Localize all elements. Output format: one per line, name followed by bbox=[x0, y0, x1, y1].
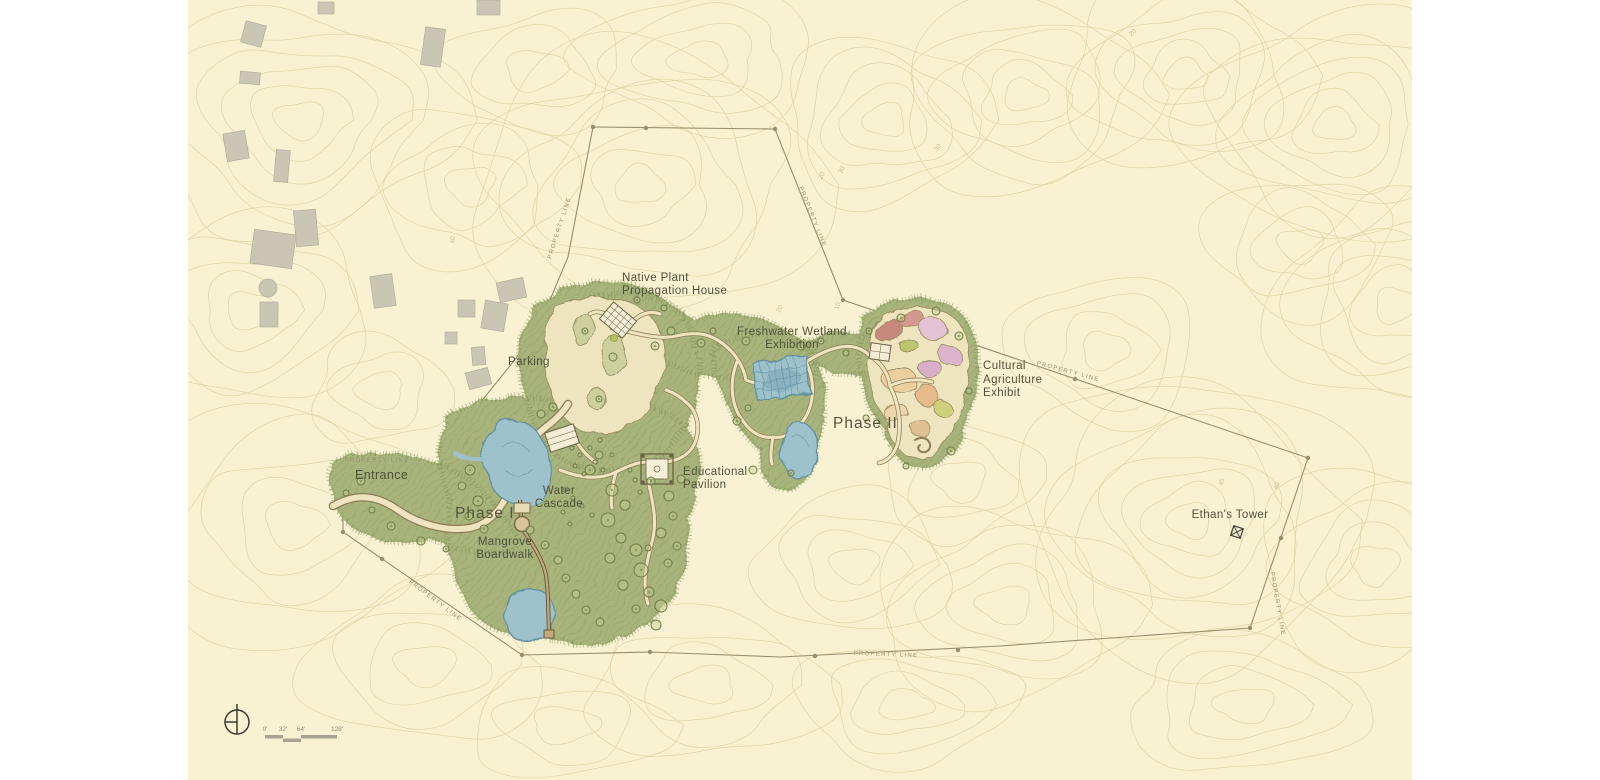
property-line-label-entrance: PROPERTY LINE bbox=[345, 458, 410, 464]
site-plan-drawing bbox=[0, 0, 1600, 780]
scale-tick: 128' bbox=[331, 726, 343, 733]
label-ethans-tower: Ethan's Tower bbox=[1192, 509, 1269, 522]
freshwater-wetland-pond bbox=[753, 355, 812, 400]
scale-tick: 64' bbox=[297, 726, 305, 733]
label-educational-pavilion: Educational Pavilion bbox=[683, 466, 748, 492]
label-freshwater-wetland: Freshwater Wetland Exhibition bbox=[737, 326, 847, 352]
label-cultural-agriculture: Cultural Agriculture Exhibit bbox=[983, 360, 1042, 401]
scale-tick: 0' bbox=[263, 726, 268, 733]
label-mangrove-boardwalk: Mangrove Boardwalk bbox=[476, 536, 533, 562]
cultural-shed-structure bbox=[869, 343, 891, 362]
master-plan-page: Native Plant Propagation House Parking E… bbox=[0, 0, 1600, 780]
contour-label: 45 bbox=[1218, 478, 1226, 487]
label-parking: Parking bbox=[508, 356, 550, 369]
label-entrance: Entrance bbox=[355, 468, 408, 482]
cascade-weir-structure bbox=[514, 503, 530, 513]
ethans-tower-icon bbox=[1231, 526, 1244, 539]
label-water-cascade: Water Cascade bbox=[535, 485, 583, 511]
contour-label: 40 bbox=[449, 236, 457, 244]
label-phase-2: Phase II bbox=[833, 415, 898, 433]
label-propagation-house: Native Plant Propagation House bbox=[622, 272, 727, 298]
scale-tick: 32' bbox=[279, 726, 287, 733]
phase2-wetland-pond bbox=[781, 422, 817, 477]
label-phase-1: Phase I bbox=[455, 505, 515, 523]
